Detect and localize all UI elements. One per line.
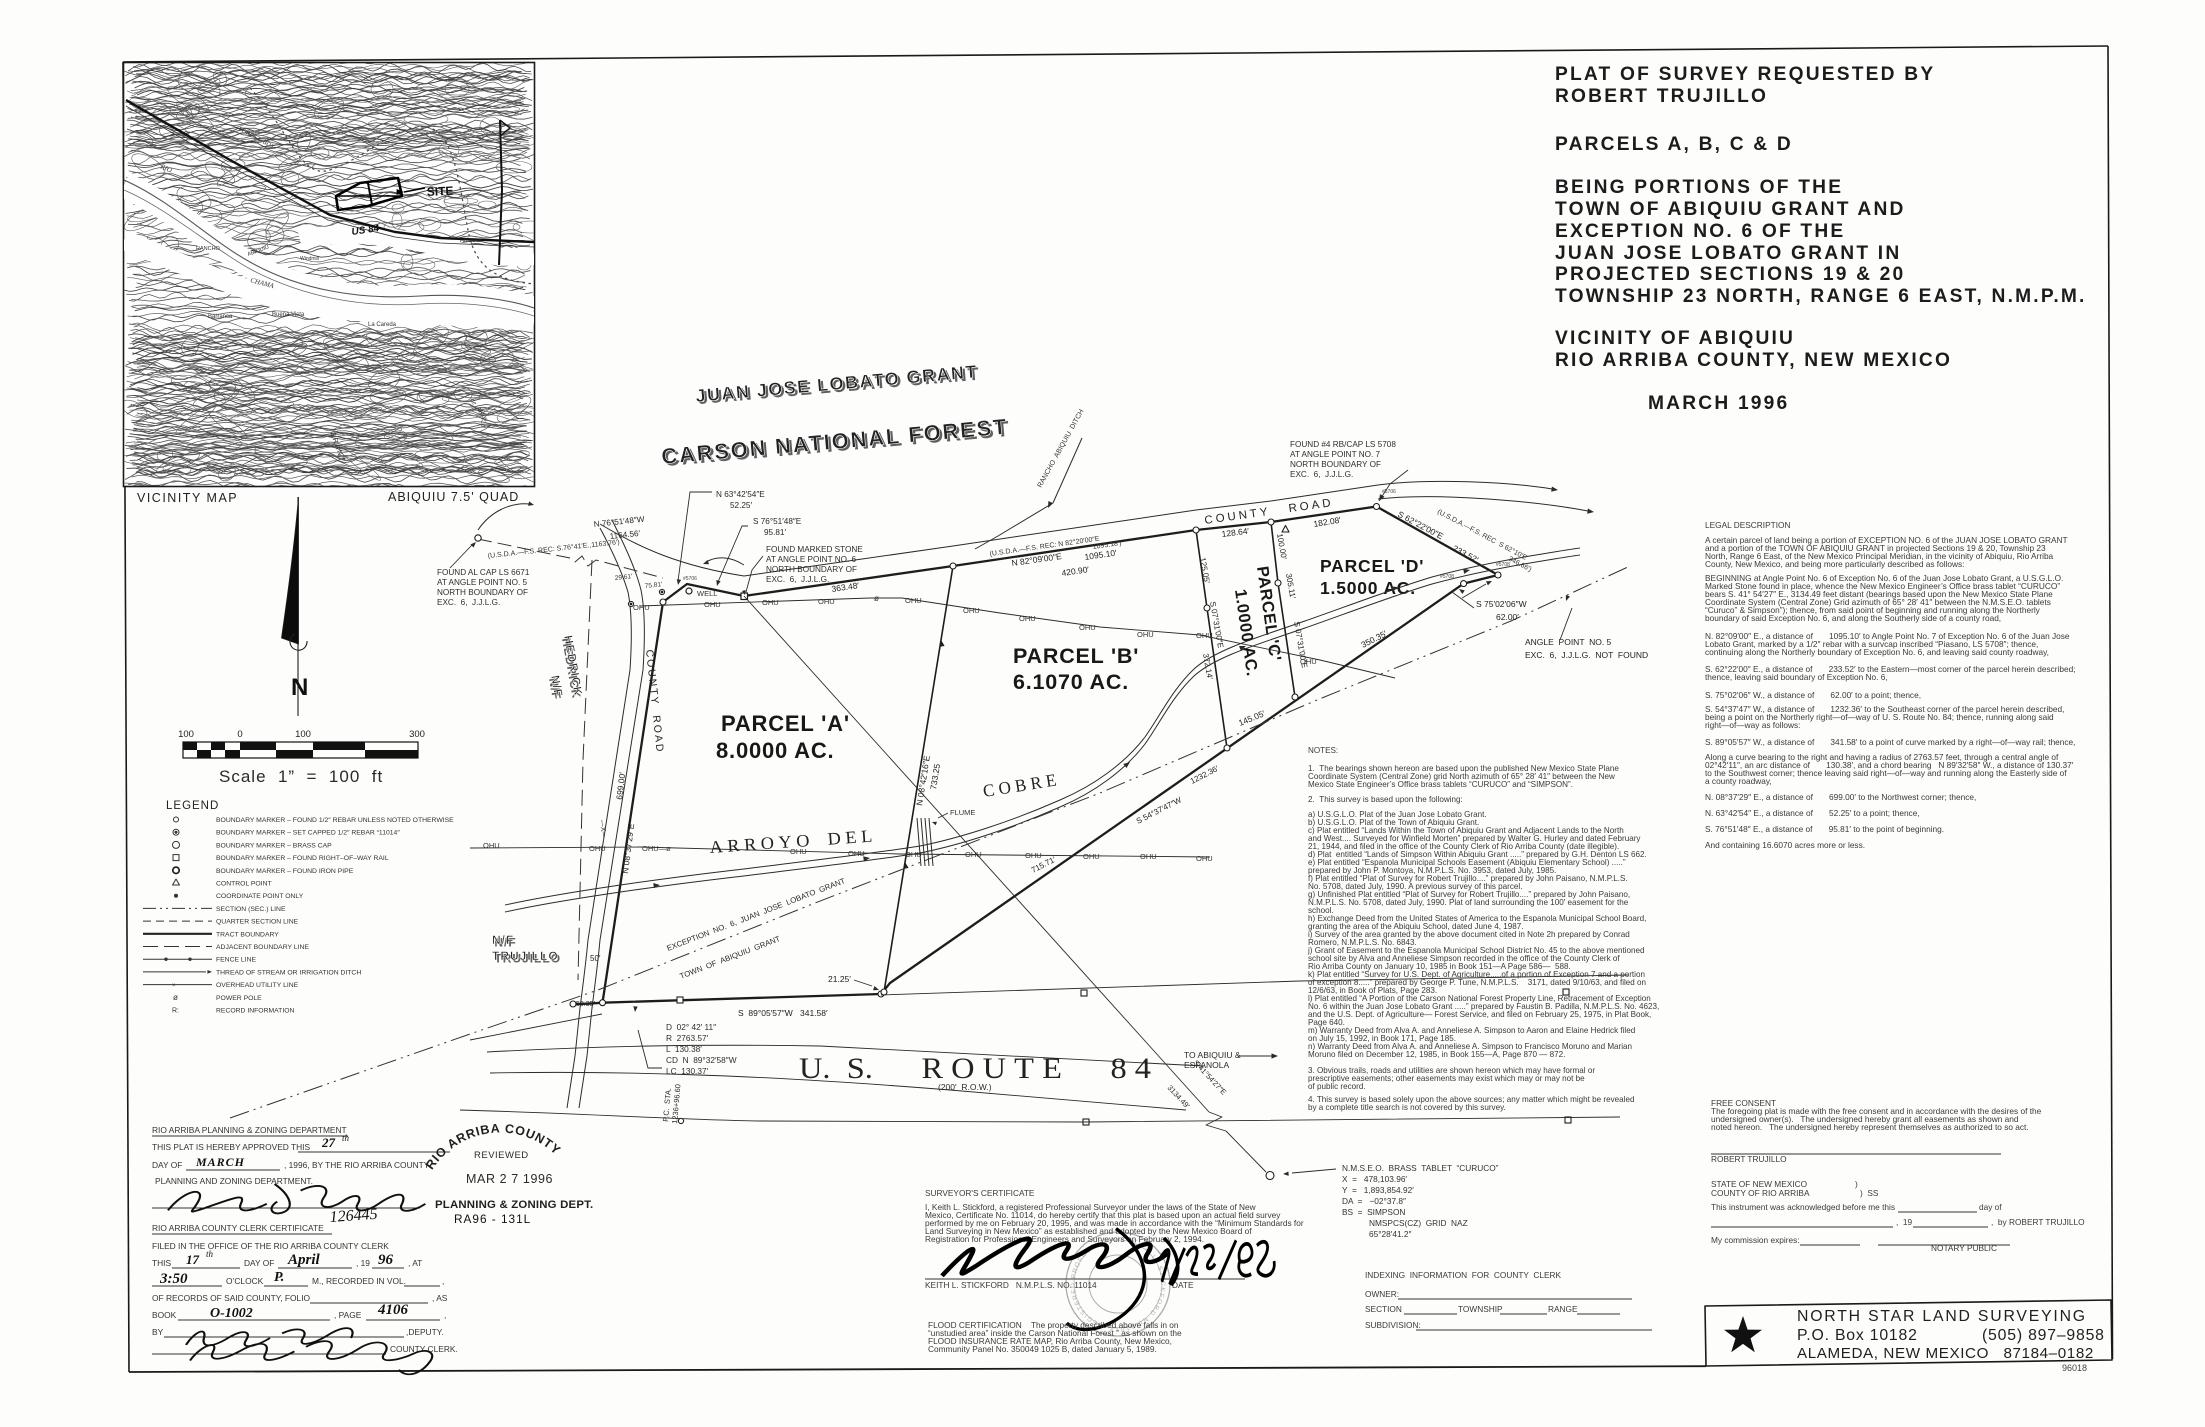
- svg-text:PLANNING & ZONING DEPT.: PLANNING & ZONING DEPT.: [435, 1199, 593, 1211]
- svg-text:305.11′: 305.11′: [1284, 573, 1297, 600]
- svg-text:,DEPUTY.: ,DEPUTY.: [406, 1327, 444, 1337]
- svg-text:4106: 4106: [377, 1302, 409, 1318]
- svg-text:27: 27: [321, 1135, 336, 1150]
- svg-text:COUNTY OF RIO ARRIBA: COUNTY OF RIO ARRIBA: [1711, 1188, 1810, 1198]
- svg-text:P.: P.: [274, 1270, 284, 1285]
- svg-text:R:: R:: [172, 1008, 179, 1015]
- svg-text:EXCEPTION NO. 6 OF THE: EXCEPTION NO. 6 OF THE: [1555, 221, 1845, 242]
- svg-text:PARCEL 'B': PARCEL 'B': [1013, 644, 1139, 668]
- svg-text:BOUNDARY MARKER – FOUND 1/2″ R: BOUNDARY MARKER – FOUND 1/2″ REBAR UNLES…: [216, 817, 454, 824]
- svg-text:RIO ARRIBA COUNTY, NEW MEXICO: RIO ARRIBA COUNTY, NEW MEXICO: [1555, 350, 1952, 371]
- svg-text:Abiquiu: Abiquiu: [460, 238, 480, 244]
- svg-text:ø: ø: [173, 993, 178, 1002]
- svg-text:N: N: [291, 674, 308, 701]
- svg-text:OHU: OHU: [965, 850, 982, 859]
- svg-text:EXC. 6, J.J.L.G.: EXC. 6, J.J.L.G.: [1290, 470, 1353, 479]
- svg-text:233.52′: 233.52′: [1451, 543, 1480, 565]
- svg-text:AT ANGLE POINT NO. 7: AT ANGLE POINT NO. 7: [1290, 450, 1381, 459]
- svg-text:and the U.S. Dept. of Agricult: and the U.S. Dept. of Agriculture— Fores…: [1308, 1010, 1651, 1019]
- svg-text:O-1002: O-1002: [210, 1306, 253, 1321]
- svg-text:OHU: OHU: [1196, 631, 1213, 640]
- svg-text:#5706: #5706: [683, 576, 697, 582]
- svg-text:OHU: OHU: [963, 606, 980, 615]
- svg-text:MAR 2 7 1996: MAR 2 7 1996: [466, 1172, 553, 1186]
- svg-text:(U.S.D.A.—F.S. REC: S.76°41′E.: (U.S.D.A.—F.S. REC: S.76°41′E.,1163.76′): [487, 538, 620, 560]
- svg-text:1.0000 AC.: 1.0000 AC.: [1231, 588, 1261, 678]
- svg-text:TRUJILLO: TRUJILLO: [492, 949, 559, 963]
- svg-text:N 08°37′29″E: N 08°37′29″E: [620, 823, 636, 875]
- svg-text:RANCHO ABIQUIU DITCH: RANCHO ABIQUIU DITCH: [1037, 408, 1086, 489]
- svg-text:AT ANGLE POINT NO. 6: AT ANGLE POINT NO. 6: [766, 555, 857, 564]
- svg-text:OHU: OHU: [818, 597, 835, 606]
- svg-text:O’CLOCK: O’CLOCK: [226, 1276, 264, 1286]
- svg-text:REVIEWED: REVIEWED: [474, 1150, 529, 1161]
- svg-text:96: 96: [378, 1252, 394, 1268]
- svg-text:S 76°51′48″E: S 76°51′48″E: [753, 517, 802, 526]
- svg-text:(U.S.D.A.—F.S. REC S 62°10′E: (U.S.D.A.—F.S. REC S 62°10′E: [1436, 508, 1529, 562]
- svg-text:PLAT OF SURVEY REQUESTED BY: PLAT OF SURVEY REQUESTED BY: [1555, 64, 1935, 85]
- svg-text:OVERHEAD UTILITY LINE: OVERHEAD UTILITY LINE: [216, 982, 299, 989]
- svg-text:OHU: OHU: [1140, 852, 1157, 861]
- svg-text:My commission expires:: My commission expires:: [1711, 1235, 1800, 1245]
- svg-text:Barranca: Barranca: [208, 314, 233, 320]
- svg-text:FLUME: FLUME: [950, 808, 975, 817]
- svg-text:0: 0: [237, 729, 242, 740]
- svg-text:This instrument was acknowledg: This instrument was acknowledged before …: [1711, 1202, 1895, 1212]
- svg-text:699.00′: 699.00′: [614, 771, 627, 800]
- svg-text:a county roadway,: a county roadway,: [1705, 776, 1772, 786]
- svg-text:NOTES:: NOTES:: [1308, 746, 1338, 755]
- svg-text:FOUND AL CAP LS 6671: FOUND AL CAP LS 6671: [437, 568, 530, 577]
- svg-text:6.1070 AC.: 6.1070 AC.: [1013, 670, 1129, 694]
- svg-text:DA = −02°37.8″: DA = −02°37.8″: [1342, 1196, 1406, 1206]
- svg-text:OHU: OHU: [589, 844, 606, 853]
- svg-text:N 76°51′48″W: N 76°51′48″W: [593, 515, 645, 529]
- svg-text:TOWNSHIP: TOWNSHIP: [1458, 1304, 1503, 1314]
- svg-text:COORDINATE POINT ONLY: COORDINATE POINT ONLY: [216, 893, 304, 900]
- svg-text:N.M.S.E.O. BRASS TABLET “CU: N.M.S.E.O. BRASS TABLET “CURUCO”: [1342, 1163, 1499, 1173]
- svg-text:CONTROL POINT: CONTROL POINT: [216, 881, 272, 888]
- svg-text:S. 89°05′57″ W., a distance of: S. 89°05′57″ W., a distance of 341.58′ t…: [1705, 737, 2075, 747]
- svg-text:boundary of said Exception No.: boundary of said Exception No. 6, and al…: [1705, 613, 2001, 623]
- svg-text:21.25′: 21.25′: [828, 974, 851, 984]
- svg-text:100.00′: 100.00′: [1275, 533, 1288, 561]
- svg-text:BY: BY: [152, 1327, 164, 1337]
- svg-text:50′: 50′: [590, 954, 601, 963]
- svg-text:96018: 96018: [2062, 1363, 2087, 1373]
- svg-text:ABIQUIU 7.5' QUAD: ABIQUIU 7.5' QUAD: [388, 490, 519, 504]
- svg-text:TOWNSHIP 23 NORTH, RANGE 6 EAS: TOWNSHIP 23 NORTH, RANGE 6 EAST, N.M.P.M…: [1555, 286, 2087, 307]
- svg-text:th: th: [206, 1249, 214, 1259]
- svg-text:, AS: , AS: [432, 1293, 448, 1303]
- svg-text:FOUND MARKED STONE: FOUND MARKED STONE: [766, 545, 863, 554]
- svg-text:RANCHO: RANCHO: [196, 246, 221, 252]
- svg-text:—X—: —X—: [598, 819, 607, 838]
- svg-text:LEGEND: LEGEND: [166, 800, 219, 812]
- svg-text:TO ABIQUIU &: TO ABIQUIU &: [1184, 1050, 1241, 1060]
- svg-text:182.08′: 182.08′: [1313, 515, 1342, 529]
- svg-text:Y = 1,893,854.92′: Y = 1,893,854.92′: [1342, 1185, 1414, 1195]
- svg-text:95.81′: 95.81′: [764, 528, 786, 537]
- svg-text:POWER POLE: POWER POLE: [216, 995, 262, 1002]
- svg-text:Mexico State Engineer’s Office: Mexico State Engineer’s Office brass tab…: [1308, 780, 1573, 789]
- svg-text:DAY OF: DAY OF: [244, 1258, 274, 1268]
- svg-text:NORTH BOUNDARY OF: NORTH BOUNDARY OF: [1290, 460, 1381, 469]
- svg-text:OHU: OHU: [704, 600, 721, 609]
- svg-text:3134.49′: 3134.49′: [1166, 1083, 1192, 1110]
- svg-text:OHU: OHU: [1137, 630, 1154, 639]
- svg-text:R 2763.57′: R 2763.57′: [666, 1033, 709, 1043]
- svg-text:RA96 - 131L: RA96 - 131L: [454, 1212, 531, 1226]
- svg-text:Community Panel No. 350049 102: Community Panel No. 350049 1025 B, dated…: [928, 1344, 1157, 1354]
- svg-text:BOUNDARY MARKER – FOUND RIGHT–: BOUNDARY MARKER – FOUND RIGHT–OF–WAY RAI…: [216, 855, 389, 862]
- svg-text:SURVEYOR'S CERTIFICATE: SURVEYOR'S CERTIFICATE: [925, 1188, 1035, 1198]
- svg-text:N. 08°37′29″ E., a distance of: N. 08°37′29″ E., a distance of 699.00′ t…: [1705, 792, 1976, 802]
- svg-text:S 07°31′00″E: S 07°31′00″E: [1208, 601, 1225, 649]
- svg-text:COUNTY CLERK.: COUNTY CLERK.: [390, 1344, 458, 1354]
- svg-text:LEGAL DESCRIPTION: LEGAL DESCRIPTION: [1705, 520, 1790, 530]
- svg-text:right—of—way as follows:: right—of—way as follows:: [1705, 720, 1800, 730]
- svg-text:SECTION (SEC.) LINE: SECTION (SEC.) LINE: [216, 906, 286, 913]
- svg-text:52.25′: 52.25′: [730, 501, 752, 510]
- svg-text:FILED IN THE OFFICE OF THE RIO: FILED IN THE OFFICE OF THE RIO ARRIBA CO…: [152, 1241, 389, 1251]
- svg-text:NORTH BOUNDARY OF: NORTH BOUNDARY OF: [766, 565, 857, 574]
- svg-text:#5706: #5706: [1382, 489, 1396, 495]
- svg-text:,: ,: [444, 1310, 446, 1320]
- svg-text:ø: ø: [874, 594, 879, 603]
- svg-text:OHU: OHU: [762, 598, 779, 607]
- svg-text:noted hereon. The undersigne: noted hereon. The undersigned hereby rep…: [1711, 1122, 2029, 1132]
- svg-text:SECTION: SECTION: [1365, 1304, 1402, 1314]
- svg-text:OHU: OHU: [483, 841, 500, 850]
- svg-text:,: ,: [442, 1276, 444, 1286]
- svg-text:AT ANGLE POINT NO. 5: AT ANGLE POINT NO. 5: [437, 578, 528, 587]
- svg-text:RANGE: RANGE: [1548, 1304, 1578, 1314]
- svg-text:50.35′: 50.35′: [576, 1001, 596, 1008]
- svg-text:OWNER:: OWNER:: [1365, 1289, 1399, 1299]
- svg-text:N.M.P.L.S. No. 5708, dated Jul: N.M.P.L.S. No. 5708, dated July, 1990. P…: [1308, 898, 1629, 907]
- svg-text:D 02° 42′ 11″: D 02° 42′ 11″: [666, 1022, 716, 1032]
- svg-text:EXCEPTION NO. 6, JUAN JOSE: EXCEPTION NO. 6, JUAN JOSE LOBATO GRANT: [665, 876, 846, 953]
- svg-text:VICINITY MAP: VICINITY MAP: [137, 491, 238, 505]
- svg-text:continuing along the Northerly: continuing along the Northerly boundary …: [1705, 647, 2049, 657]
- svg-text:P.O. Box 10182: P.O. Box 10182: [1797, 1327, 1918, 1344]
- svg-text:N. 63°42′54″ E., a distance of: N. 63°42′54″ E., a distance of 52.25′ to…: [1705, 808, 1920, 818]
- svg-text:DAY OF: DAY OF: [152, 1160, 182, 1170]
- svg-text:ESPANOLA: ESPANOLA: [1184, 1060, 1230, 1070]
- svg-text:8.0000 AC.: 8.0000 AC.: [716, 738, 834, 763]
- svg-text:PROJECTED SECTIONS 19 & 20: PROJECTED SECTIONS 19 & 20: [1555, 264, 1905, 285]
- svg-text:CD N 89°32′58″W: CD N 89°32′58″W: [666, 1055, 737, 1065]
- svg-text:INDEXING INFORMATION FOR CO: INDEXING INFORMATION FOR COUNTY CLERK: [1365, 1270, 1562, 1280]
- svg-text:S 54°37′47″W: S 54°37′47″W: [1135, 795, 1183, 826]
- svg-text:, AT: , AT: [408, 1258, 422, 1268]
- svg-text:BOUNDARY MARKER – FOUND IRON P: BOUNDARY MARKER – FOUND IRON PIPE: [216, 868, 354, 875]
- svg-text:125.05′: 125.05′: [1198, 557, 1211, 585]
- svg-text:th: th: [342, 1133, 350, 1143]
- svg-text:thence, leaving said boundary: thence, leaving said boundary of Excepti…: [1705, 672, 1888, 682]
- svg-text:County, New Mexico, and being: County, New Mexico, and being more parti…: [1705, 559, 1964, 569]
- svg-text:, 1996, BY THE RIO ARRIBA COUN: , 1996, BY THE RIO ARRIBA COUNTY: [284, 1160, 430, 1170]
- svg-text:OHU: OHU: [633, 603, 650, 612]
- svg-text:300: 300: [409, 729, 425, 740]
- svg-text:, by ROBERT TRUJILLO: , by ROBERT TRUJILLO: [1991, 1217, 2085, 1227]
- svg-text:OHU: OHU: [1196, 854, 1213, 863]
- svg-text:100: 100: [178, 729, 194, 740]
- svg-text:65°28′41.2″: 65°28′41.2″: [1369, 1229, 1411, 1239]
- svg-text:La Careda: La Careda: [368, 322, 397, 328]
- svg-text:FENCE LINE: FENCE LINE: [216, 957, 257, 964]
- svg-text:NORTH STAR LAND SURVEYING: NORTH STAR LAND SURVEYING: [1797, 1308, 2087, 1325]
- svg-text:S. 75°02′06″ W., a distance of: S. 75°02′06″ W., a distance of 62.00′ to…: [1705, 690, 1921, 700]
- svg-text:1.5000 AC.: 1.5000 AC.: [1320, 578, 1416, 598]
- svg-text:NORTH BOUNDARY OF: NORTH BOUNDARY OF: [437, 588, 528, 597]
- svg-text:PLANNING AND ZONING DEPARTMENT: PLANNING AND ZONING DEPARTMENT.: [155, 1176, 313, 1186]
- svg-text:128.64′: 128.64′: [1221, 526, 1250, 539]
- svg-text:C O B R E: C O B R E: [981, 770, 1057, 801]
- svg-text:SITE: SITE: [426, 184, 453, 199]
- svg-text:PARCEL 'A': PARCEL 'A': [721, 711, 850, 736]
- svg-text:N/F: N/F: [492, 933, 514, 947]
- svg-text:by a complete title search is: by a complete title search is not covere…: [1308, 1103, 1506, 1112]
- svg-text:NOTARY PUBLIC: NOTARY PUBLIC: [1931, 1243, 1997, 1253]
- svg-text:RIO ARRIBA COUNTY: RIO ARRIBA COUNTY: [423, 1121, 564, 1172]
- svg-text:3:50: 3:50: [159, 1271, 188, 1287]
- svg-text:, 19: , 19: [356, 1258, 370, 1268]
- svg-text:S 89°05′57″W: S 89°05′57″W: [738, 1008, 793, 1018]
- svg-text:JUAN JOSE LOBATO GRANT: JUAN JOSE LOBATO GRANT: [695, 361, 979, 406]
- svg-text:RECORD INFORMATION: RECORD INFORMATION: [216, 1008, 295, 1015]
- svg-text:) SS: ) SS: [1860, 1188, 1879, 1198]
- svg-text:OHU: OHU: [1025, 851, 1042, 860]
- svg-text:Buena Vista: Buena Vista: [272, 312, 305, 318]
- svg-text:OHU: OHU: [1083, 852, 1100, 861]
- svg-text:, PAGE: , PAGE: [334, 1310, 362, 1320]
- svg-text:EXC. 6, J.J.L.G.: EXC. 6, J.J.L.G.: [766, 575, 829, 584]
- svg-text:U. S. R O U T E 8 4: U. S. R O U T E 8 4: [799, 1052, 1151, 1085]
- svg-text:ROBERT TRUJILLO: ROBERT TRUJILLO: [1711, 1154, 1787, 1164]
- svg-text:ALAMEDA, NEW MEXICO 87184–01: ALAMEDA, NEW MEXICO 87184–0182: [1797, 1345, 2094, 1362]
- svg-text:RIO ARRIBA COUNTY CLERK CERTIF: RIO ARRIBA COUNTY CLERK CERTIFICATE: [152, 1223, 324, 1233]
- svg-text:PARCELS A, B, C & D: PARCELS A, B, C & D: [1555, 134, 1793, 155]
- svg-text:THREAD OF STREAM OR IRRIGATION: THREAD OF STREAM OR IRRIGATION DITCH: [216, 969, 361, 976]
- svg-text:Windmill: Windmill: [300, 256, 319, 262]
- svg-text:S 75′02′06″W: S 75′02′06″W: [1476, 599, 1527, 609]
- svg-text:Scale 1” = 100 ft: Scale 1” = 100 ft: [219, 767, 383, 786]
- svg-text:420.90′: 420.90′: [1061, 564, 1090, 578]
- svg-text:Moruno filed on December 12, 1: Moruno filed on December 12, 1985, in Bo…: [1308, 1050, 1565, 1059]
- svg-text:1232.36′: 1232.36′: [1189, 764, 1221, 786]
- svg-text:JUAN JOSE LOBATO GRANT IN: JUAN JOSE LOBATO GRANT IN: [1555, 243, 1901, 264]
- svg-text:MARCH 1996: MARCH 1996: [1648, 393, 1789, 414]
- svg-text:THIS: THIS: [152, 1258, 171, 1268]
- svg-text:M., RECORDED IN VOL.: M., RECORDED IN VOL.: [312, 1276, 406, 1286]
- svg-text:OHU: OHU: [848, 849, 865, 858]
- svg-text:29.61′: 29.61′: [614, 573, 633, 582]
- svg-text:OHU—ø: OHU—ø: [642, 844, 671, 853]
- svg-text:S. 76°51′48″ E., a distance of: S. 76°51′48″ E., a distance of 95.81′ to…: [1705, 824, 1944, 834]
- svg-text:OHU: OHU: [1300, 657, 1317, 666]
- svg-text:OHU: OHU: [1019, 614, 1036, 623]
- svg-text:PARCEL 'D': PARCEL 'D': [1320, 556, 1424, 576]
- svg-text:X = 478,103.96′: X = 478,103.96′: [1342, 1174, 1407, 1184]
- svg-text:EXC. 6, J.J.L.G.: EXC. 6, J.J.L.G.: [437, 598, 500, 607]
- svg-text:ADJACENT BOUNDARY LINE: ADJACENT BOUNDARY LINE: [216, 944, 309, 951]
- svg-text:CARSON NATIONAL FOREST: CARSON NATIONAL FOREST: [660, 414, 1009, 469]
- svg-text:(200′ R.O.W.): (200′ R.O.W.): [938, 1082, 992, 1092]
- svg-text:1095.10′: 1095.10′: [1084, 548, 1118, 562]
- svg-text:BEING PORTIONS OF THE: BEING PORTIONS OF THE: [1555, 177, 1843, 198]
- svg-text:100: 100: [295, 729, 311, 740]
- svg-text:And containing 16.6070 acres m: And containing 16.6070 acres more or les…: [1705, 840, 1865, 850]
- svg-text:April: April: [287, 1252, 321, 1268]
- svg-text:SUBDIVISION:: SUBDIVISION:: [1365, 1320, 1421, 1330]
- svg-text:BS = SIMPSON: BS = SIMPSON: [1342, 1207, 1405, 1217]
- svg-text:62.00′: 62.00′: [1496, 612, 1519, 622]
- svg-text:OHU: OHU: [1079, 623, 1096, 632]
- svg-text:TRACT BOUNDARY: TRACT BOUNDARY: [216, 931, 279, 938]
- svg-text:17: 17: [186, 1252, 200, 1267]
- svg-text:N 63°42′54″E: N 63°42′54″E: [716, 490, 765, 499]
- svg-text:RIO ARRIBA PLANNING & ZONING D: RIO ARRIBA PLANNING & ZONING DEPARTMENT: [152, 1125, 347, 1135]
- svg-text:VICINITY OF ABIQUIU: VICINITY OF ABIQUIU: [1555, 328, 1795, 349]
- svg-text:75.81′: 75.81′: [644, 581, 663, 590]
- svg-text:OF RECORDS OF SAID COUNTY, FOL: OF RECORDS OF SAID COUNTY, FOLIO: [152, 1293, 311, 1303]
- svg-text:): ): [1855, 1179, 1858, 1189]
- svg-text:THIS PLAT IS HEREBY APPROVED T: THIS PLAT IS HEREBY APPROVED THIS: [152, 1142, 311, 1152]
- svg-text:day of: day of: [1979, 1202, 2002, 1212]
- svg-text:WELL: WELL: [697, 589, 717, 598]
- svg-text:, 19: , 19: [1896, 1217, 1913, 1227]
- svg-text:MARCH: MARCH: [195, 1155, 245, 1169]
- svg-text:BOUNDARY MARKER – BRASS CAP: BOUNDARY MARKER – BRASS CAP: [216, 842, 332, 849]
- svg-text:(505) 897–9858: (505) 897–9858: [1982, 1327, 2105, 1344]
- svg-text:TOWN OF ABIQUIU GRANT AND: TOWN OF ABIQUIU GRANT AND: [1555, 199, 1906, 220]
- svg-text:NMSPCS(CZ) GRID NAZ: NMSPCS(CZ) GRID NAZ: [1369, 1218, 1468, 1228]
- svg-text:QUARTER SECTION LINE: QUARTER SECTION LINE: [216, 919, 299, 926]
- svg-text:ANGLE POINT NO. 5: ANGLE POINT NO. 5: [1525, 637, 1612, 647]
- svg-text:BOOK: BOOK: [152, 1310, 177, 1320]
- svg-text:EXC. 6, J.J.L.G. NOT FOUND: EXC. 6, J.J.L.G. NOT FOUND: [1525, 650, 1648, 660]
- svg-text:BOUNDARY MARKER – SET CAPPED 1: BOUNDARY MARKER – SET CAPPED 1/2″ REBAR …: [216, 830, 400, 837]
- svg-text:of public record.: of public record.: [1308, 1082, 1366, 1091]
- svg-text:×: ×: [172, 983, 176, 989]
- svg-text:FOUND #4 RB/CAP LS 5708: FOUND #4 RB/CAP LS 5708: [1290, 440, 1396, 449]
- svg-text:2. This survey is based upon: 2. This survey is based upon the followi…: [1308, 795, 1463, 804]
- svg-text:341.58′: 341.58′: [800, 1008, 828, 1018]
- svg-text:OHU: OHU: [905, 596, 922, 605]
- svg-text:ROBERT TRUJILLO: ROBERT TRUJILLO: [1555, 86, 1768, 107]
